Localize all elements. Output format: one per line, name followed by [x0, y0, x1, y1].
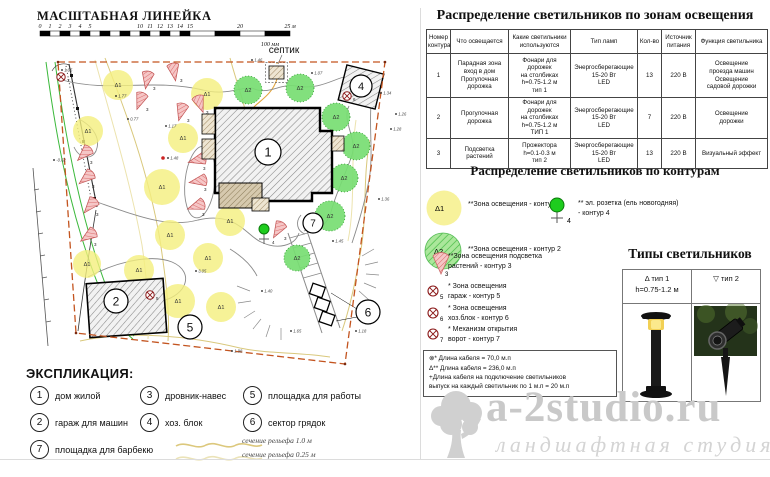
relief-label-2: сечение рельефа 0.25 м	[242, 450, 316, 459]
zones-table-cell: Энергосберегающие 15-20 Вт LED	[571, 54, 638, 98]
legend-icon-zone1: Δ1	[425, 189, 463, 232]
bottom-frame-line	[0, 459, 770, 460]
svg-text:4: 4	[272, 240, 275, 245]
svg-text:1.17: 1.17	[168, 124, 177, 129]
explication-item-6: 6сектор грядок	[243, 413, 325, 432]
svg-text:Δ1: Δ1	[167, 233, 174, 239]
svg-text:10: 10	[137, 24, 143, 30]
circuit-symbol: 7	[57, 73, 70, 83]
explication-number: 7	[30, 440, 49, 459]
lamp-type2-label: ▽ тип 2	[692, 273, 760, 284]
explication-number: 4	[140, 413, 159, 432]
explication-label: хоз. блок	[165, 418, 202, 428]
svg-text:Δ1: Δ1	[204, 92, 211, 98]
zones-table-row: 2Прогулочная дорожкаФонари для дорожек н…	[427, 98, 768, 139]
floodlight-contour3-marker: 3	[131, 90, 149, 112]
svg-text:4: 4	[79, 23, 82, 30]
scale-ruler: 0123451011121314152025 м	[39, 23, 296, 36]
svg-text:5: 5	[440, 295, 444, 301]
explication-label: площадка для работы	[268, 391, 361, 401]
explication-number: 3	[140, 386, 159, 405]
septic-label: септик	[269, 45, 300, 56]
socket-legend-icon: 4	[546, 195, 576, 227]
svg-text:Δ1: Δ1	[159, 185, 166, 191]
floodlight-contour3-marker: 3	[167, 62, 183, 83]
svg-text:25 м: 25 м	[284, 24, 296, 30]
svg-text:1: 1	[49, 24, 52, 30]
note-line-2: Δ** Длина кабеля = 236,0 м.п	[429, 365, 611, 374]
explication-item-4: 4хоз. блок	[140, 413, 202, 432]
svg-text:Δ1: Δ1	[180, 136, 187, 142]
svg-text:0.77: 0.77	[130, 117, 139, 122]
zones-table-cell: 220 В	[662, 98, 696, 139]
svg-text:1.46: 1.46	[254, 58, 263, 63]
svg-text:2: 2	[113, 294, 120, 308]
zones-table-cell: 13	[638, 54, 662, 98]
building-number: 1	[255, 139, 281, 165]
svg-text:Δ1: Δ1	[227, 219, 234, 225]
landscape-lighting-plan-sheet: Δ1Δ1Δ1Δ1Δ1Δ1Δ1Δ1Δ1Δ1Δ1Δ1Δ2Δ2Δ2Δ2Δ2Δ2Δ2 3…	[0, 0, 770, 477]
svg-text:Δ2: Δ2	[333, 115, 340, 121]
panel-divider	[420, 8, 421, 460]
svg-text:3: 3	[445, 272, 449, 277]
lighting-zone-contour2-marker: Δ2	[286, 74, 314, 102]
floodlight-contour3-marker: 3	[73, 143, 94, 165]
svg-text:4: 4	[567, 218, 571, 225]
zones-table-cell: Фонари для дорожек на столбиках h=0.75-1…	[509, 98, 571, 139]
zones-table-cell: Фонари для дорожек на столбиках h=0.75-1…	[509, 54, 571, 98]
svg-text:0: 0	[39, 24, 42, 30]
note-line-1: ⊗* Длина кабеля = 70,0 м.п	[429, 355, 611, 364]
relief-label-1: сечение рельефа 1.0 м	[242, 436, 312, 445]
svg-text:3: 3	[146, 107, 149, 112]
explication-item-5: 5площадка для работы	[243, 386, 361, 405]
svg-text:Δ2: Δ2	[327, 214, 334, 220]
svg-text:1.07: 1.07	[314, 71, 323, 76]
svg-text:Δ2: Δ2	[297, 86, 304, 92]
svg-text:5: 5	[89, 24, 92, 30]
legend-item-text: * Зона освещения гараж - контур 5	[448, 282, 507, 302]
zones-table-header: Тип ламп	[571, 30, 638, 54]
zones-table-header: Что освещается	[451, 30, 509, 54]
explication-number: 5	[243, 386, 262, 405]
building-number: 7	[303, 213, 323, 233]
svg-text:3: 3	[180, 78, 183, 83]
svg-text:3: 3	[204, 187, 207, 192]
svg-text:3.05: 3.05	[198, 269, 207, 274]
svg-text:7: 7	[440, 338, 444, 344]
svg-text:Δ1: Δ1	[84, 262, 91, 268]
zones-table-cell: Прогулочная дорожка	[451, 98, 509, 139]
svg-text:3: 3	[94, 242, 97, 247]
lighting-zone-contour1-marker: Δ1	[155, 220, 185, 250]
explication-number: 6	[243, 413, 262, 432]
explication-label: дровник-навес	[165, 391, 226, 401]
svg-text:Δ1: Δ1	[136, 268, 143, 274]
svg-text:15: 15	[187, 24, 193, 30]
building-number: 4	[350, 75, 372, 97]
lamp-type1-cell: Δ тип 1 h=0.75-1.2 м	[623, 270, 691, 401]
svg-text:11: 11	[147, 24, 153, 30]
garden-beds	[309, 283, 334, 326]
svg-text:Δ1: Δ1	[218, 305, 225, 311]
legend-item-text: * Зона освещения хоз.блок - контур 6	[448, 304, 509, 324]
building-number: 5	[178, 315, 202, 339]
svg-text:Δ2: Δ2	[341, 176, 348, 182]
svg-text:1.28: 1.28	[393, 127, 402, 132]
zones-table-header: Источник питания	[662, 30, 696, 54]
floodlight-contour3-marker: 3	[173, 102, 190, 123]
explication-item-3: 3дровник-навес	[140, 386, 226, 405]
scale-ruler-title: МАСШТАБНАЯ ЛИНЕЙКА	[37, 9, 212, 24]
svg-text:3: 3	[187, 118, 190, 123]
svg-text:4: 4	[358, 81, 364, 93]
svg-text:5: 5	[187, 320, 194, 334]
explication-label: дом жилой	[55, 391, 100, 401]
floodlight-contour3-marker: 3	[140, 70, 156, 91]
svg-text:3: 3	[153, 86, 156, 91]
lighting-zone-contour1-marker: Δ1	[206, 292, 236, 322]
lamp-types-title: Типы светильников	[614, 246, 766, 262]
svg-text:1.98: 1.98	[234, 349, 243, 354]
svg-text:12: 12	[157, 24, 163, 30]
svg-text:Δ1: Δ1	[205, 256, 212, 262]
zones-distribution-table: Номер контураЧто освещаетсяКакие светиль…	[426, 29, 768, 169]
lighting-zone-contour2-marker: Δ2	[234, 76, 262, 104]
svg-text:-0.62: -0.62	[56, 158, 66, 163]
zones-table-cell: 1	[427, 54, 451, 98]
lamp-type1-label: Δ тип 1	[623, 273, 691, 284]
lighting-zone-contour1-marker: Δ1	[73, 116, 103, 146]
svg-text:1.05: 1.05	[64, 68, 73, 73]
svg-text:6: 6	[440, 317, 444, 323]
zones-table-cell: Освещение проезда машин Освещение садово…	[696, 54, 768, 98]
svg-text:Δ2: Δ2	[294, 256, 301, 262]
building-number: 2	[104, 289, 128, 313]
svg-text:3: 3	[203, 166, 206, 171]
legend-item-text: * Механизм открытия ворот - контур 7	[448, 325, 517, 345]
explication-item-1: 1дом жилой	[30, 386, 100, 405]
svg-text:20: 20	[237, 24, 243, 30]
svg-text:Δ1: Δ1	[435, 204, 444, 213]
zones-table-cell: Парадная зона вход в дом Прогулочная дор…	[451, 54, 509, 98]
svg-text:Δ1: Δ1	[115, 83, 122, 89]
zones-table-header: Функция светильника	[696, 30, 768, 54]
zones-table-cell: 7	[638, 98, 662, 139]
svg-text:2: 2	[59, 24, 62, 30]
svg-text:3: 3	[96, 212, 99, 217]
svg-text:1.65: 1.65	[293, 329, 302, 334]
svg-text:1: 1	[264, 145, 271, 160]
svg-text:Δ2: Δ2	[353, 144, 360, 150]
zones-table-header: Какие светильники используются	[509, 30, 571, 54]
explication-number: 2	[30, 413, 49, 432]
svg-text:1.40: 1.40	[264, 289, 273, 294]
svg-text:1.34: 1.34	[383, 91, 392, 96]
legend-icon-otimes: 6	[426, 306, 448, 328]
lighting-zone-contour1-marker: Δ1	[144, 169, 180, 205]
svg-text:1.26: 1.26	[398, 112, 407, 117]
explication-block: ЭКСПЛИКАЦИЯ: 1дом жилой2гараж для машин3…	[26, 366, 420, 472]
svg-text:14: 14	[177, 23, 183, 30]
legend-icon-otimes: 5	[426, 284, 448, 306]
svg-text:1.77: 1.77	[118, 94, 127, 99]
zones-table-header: Номер контура	[427, 30, 451, 54]
septic-tank	[269, 66, 284, 79]
zones-table-cell: Освещение дорожки	[696, 98, 768, 139]
lighting-zone-contour2-marker: Δ2	[322, 103, 350, 131]
legend-item-text: **Зона освещения подсветка растений - ко…	[448, 252, 542, 272]
svg-text:1.48: 1.48	[170, 156, 179, 161]
zones-table-cell: Энергосберегающие 15-20 Вт LED	[571, 98, 638, 139]
zones-table-cell: 220 В	[662, 54, 696, 98]
explication-label: площадка для барбекю	[55, 445, 153, 455]
buildings-layer	[86, 55, 384, 338]
lighting-zone-contour1-marker: Δ1	[191, 78, 223, 110]
floodlight-contour3-marker: 3	[268, 219, 287, 241]
svg-text:1.45: 1.45	[335, 239, 344, 244]
explication-item-7: 7площадка для барбекю	[30, 440, 153, 459]
svg-text:3: 3	[92, 184, 95, 189]
svg-text:Δ2: Δ2	[245, 88, 252, 94]
svg-text:3: 3	[90, 160, 93, 165]
svg-text:Δ1: Δ1	[85, 129, 92, 135]
svg-text:1.36: 1.36	[381, 197, 390, 202]
contours-legend-title: Распределение светильников по контурам	[428, 163, 762, 179]
svg-text:3: 3	[68, 24, 72, 30]
explication-item-2: 2гараж для машин	[30, 413, 128, 432]
floodlight-contour3-marker: 3	[188, 174, 208, 192]
socket-legend-text: ** эл. розетка (ель новогодняя) - контур…	[578, 199, 679, 219]
lighting-zone-contour2-marker: Δ2	[342, 132, 370, 160]
explication-label: сектор грядок	[268, 418, 325, 428]
svg-text:7: 7	[310, 219, 316, 230]
zones-table-row: 1Парадная зона вход в дом Прогулочная до…	[427, 54, 768, 98]
watermark-subtitle: ландшафтная студия	[496, 432, 770, 458]
floodlight-contour3-marker: 3	[75, 168, 97, 189]
floodlight-contour3-marker: 3	[185, 197, 206, 217]
watermark-site-url: a-2studio.ru	[486, 383, 721, 432]
lighting-zone-contour2-marker: Δ2	[284, 245, 310, 271]
explication-label: гараж для машин	[55, 418, 128, 428]
lighting-zone-contour1-marker: Δ1	[73, 250, 101, 278]
zones-table-header: Кол-во	[638, 30, 662, 54]
svg-text:Δ1: Δ1	[175, 299, 182, 305]
svg-text:3: 3	[202, 212, 205, 217]
zones-table-title: Распределение светильников по зонам осве…	[422, 8, 768, 24]
building-number: 6	[356, 300, 380, 324]
svg-text:6: 6	[365, 305, 372, 319]
lighting-zone-contour2-marker: Δ2	[330, 164, 358, 192]
legend-icon-otimes: 7	[426, 327, 448, 349]
lamp-type1-height: h=0.75-1.2 м	[623, 284, 691, 295]
svg-text:13: 13	[167, 24, 173, 30]
svg-text:3: 3	[284, 236, 287, 241]
explication-number: 1	[30, 386, 49, 405]
lamp-type2-cell: ▽ тип 2	[691, 270, 760, 401]
lighting-zone-contour1-marker: Δ1	[215, 206, 245, 236]
zones-table-cell: 2	[427, 98, 451, 139]
svg-text:1.18: 1.18	[358, 329, 367, 334]
